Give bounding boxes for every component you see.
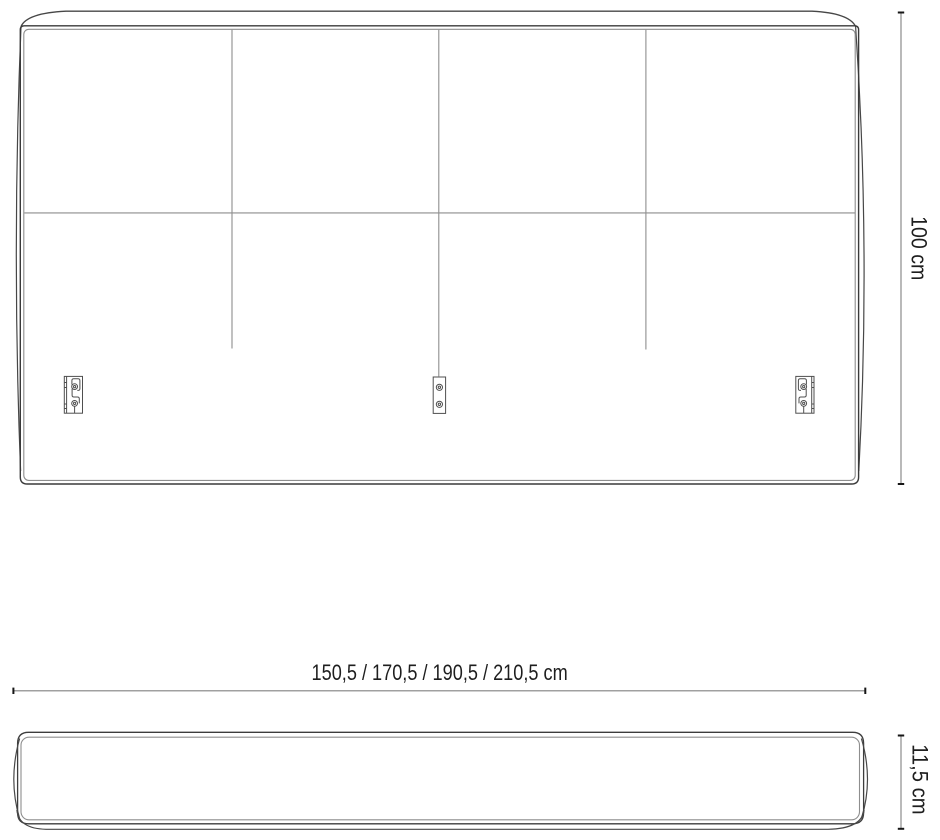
svg-text:11,5 cm: 11,5 cm [907, 744, 931, 814]
svg-text:150,5 / 170,5 / 190,5 / 210,5: 150,5 / 170,5 / 190,5 / 210,5 cm [312, 661, 568, 685]
svg-text:100 cm: 100 cm [906, 216, 930, 280]
